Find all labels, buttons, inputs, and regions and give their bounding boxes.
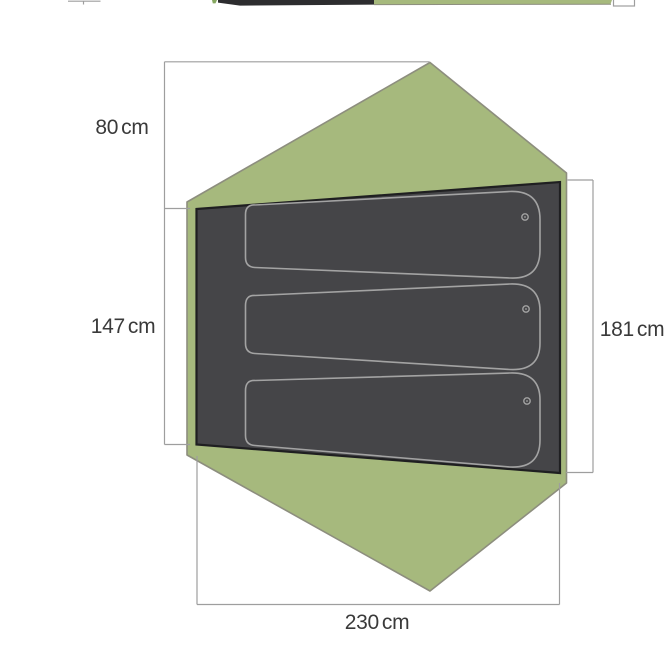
dim-label-80cm: 80cm: [95, 116, 148, 140]
pad-valve-dot-icon: [524, 216, 526, 218]
dim-unit: cm: [128, 315, 155, 339]
dim-value: 80: [95, 116, 118, 140]
dim-unit: cm: [637, 318, 664, 342]
fragment-green-peg-icon: [212, 0, 217, 3]
dim-label-230cm: 230cm: [345, 611, 410, 635]
pad-valve-dot-icon: [525, 308, 527, 310]
dim-label-147cm: 147cm: [91, 315, 156, 339]
dim-value: 147: [91, 315, 125, 339]
tent-floor-shape: [197, 182, 561, 473]
dim-value: 230: [345, 611, 379, 635]
dim-unit: cm: [382, 611, 409, 635]
dim-value: 181: [600, 318, 634, 342]
pad-valve-dot-icon: [526, 400, 528, 402]
fragment-dark-tent-base: [218, 0, 374, 6]
fragment-label-box: [614, 0, 635, 6]
dim-label-181cm: 181cm: [600, 318, 665, 342]
previous-image-fragment: [68, 0, 635, 6]
tent-floorplan-diagram: 80cm 147cm 181cm 230cm: [0, 0, 666, 666]
dim-unit: cm: [121, 116, 148, 140]
